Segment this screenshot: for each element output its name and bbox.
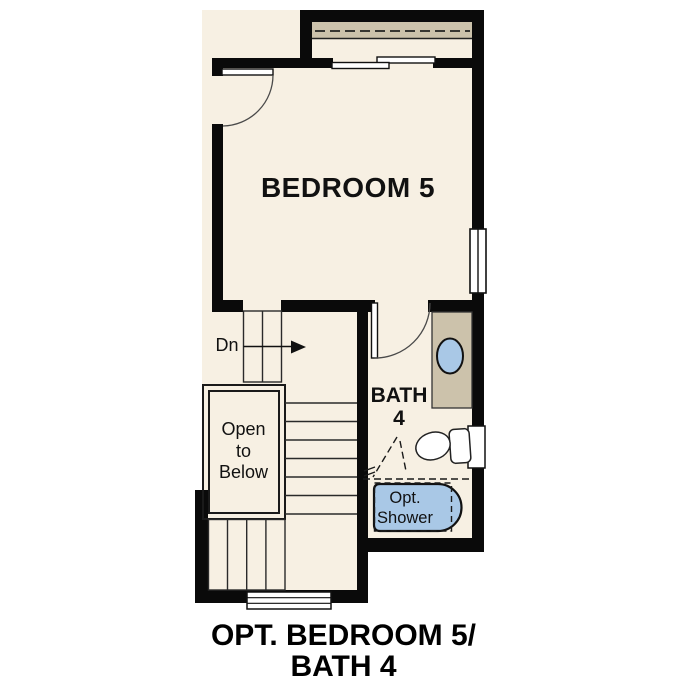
floorplan-drawing — [0, 0, 687, 687]
opt-shower-line1: Opt. — [353, 488, 457, 508]
wall-bedroom-top-left — [212, 58, 333, 68]
open-to-below-line1: Open — [209, 419, 278, 441]
plan-caption-line2: BATH 4 — [0, 651, 687, 682]
wall-bedroom-bottom-a — [212, 300, 243, 312]
wall-closet-top — [300, 10, 484, 22]
sliding-door-panel-left — [332, 63, 389, 69]
bath-vanity — [432, 312, 472, 408]
wall-stair-left — [195, 490, 208, 603]
bath-label-line2: 4 — [363, 407, 435, 430]
bath-label-line1: BATH — [363, 384, 435, 407]
bath-door-leaf — [372, 303, 378, 358]
plan-caption: OPT. BEDROOM 5/ BATH 4 — [0, 620, 687, 682]
bedroom-door-leaf — [222, 69, 273, 75]
closet-shelf — [312, 22, 472, 38]
wall-bath-bottom — [357, 538, 484, 552]
toilet-tank — [449, 428, 471, 463]
wall-bedroom-bottom-c — [428, 300, 484, 312]
floorplan-canvas: BEDROOM 5 Dn Open to Below BATH 4 Opt. S… — [0, 0, 687, 687]
plan-caption-line1: OPT. BEDROOM 5/ — [0, 620, 687, 651]
opt-shower-label: Opt. Shower — [353, 488, 457, 528]
stair-direction-label: Dn — [205, 335, 249, 355]
open-to-below-line3: Below — [209, 462, 278, 484]
opt-shower-line2: Shower — [353, 508, 457, 528]
wall-closet-stub-right — [433, 58, 484, 68]
sink-icon — [437, 339, 463, 374]
window — [470, 229, 486, 293]
threshold-box — [247, 592, 331, 609]
bedroom-label: BEDROOM 5 — [218, 172, 478, 204]
wall-bath-divider — [357, 300, 368, 603]
wall-left-lower — [212, 124, 223, 312]
stair-threshold — [247, 592, 331, 609]
bath-label: BATH 4 — [363, 384, 435, 430]
open-to-below-label: Open to Below — [209, 419, 278, 484]
open-to-below-line2: to — [209, 441, 278, 463]
